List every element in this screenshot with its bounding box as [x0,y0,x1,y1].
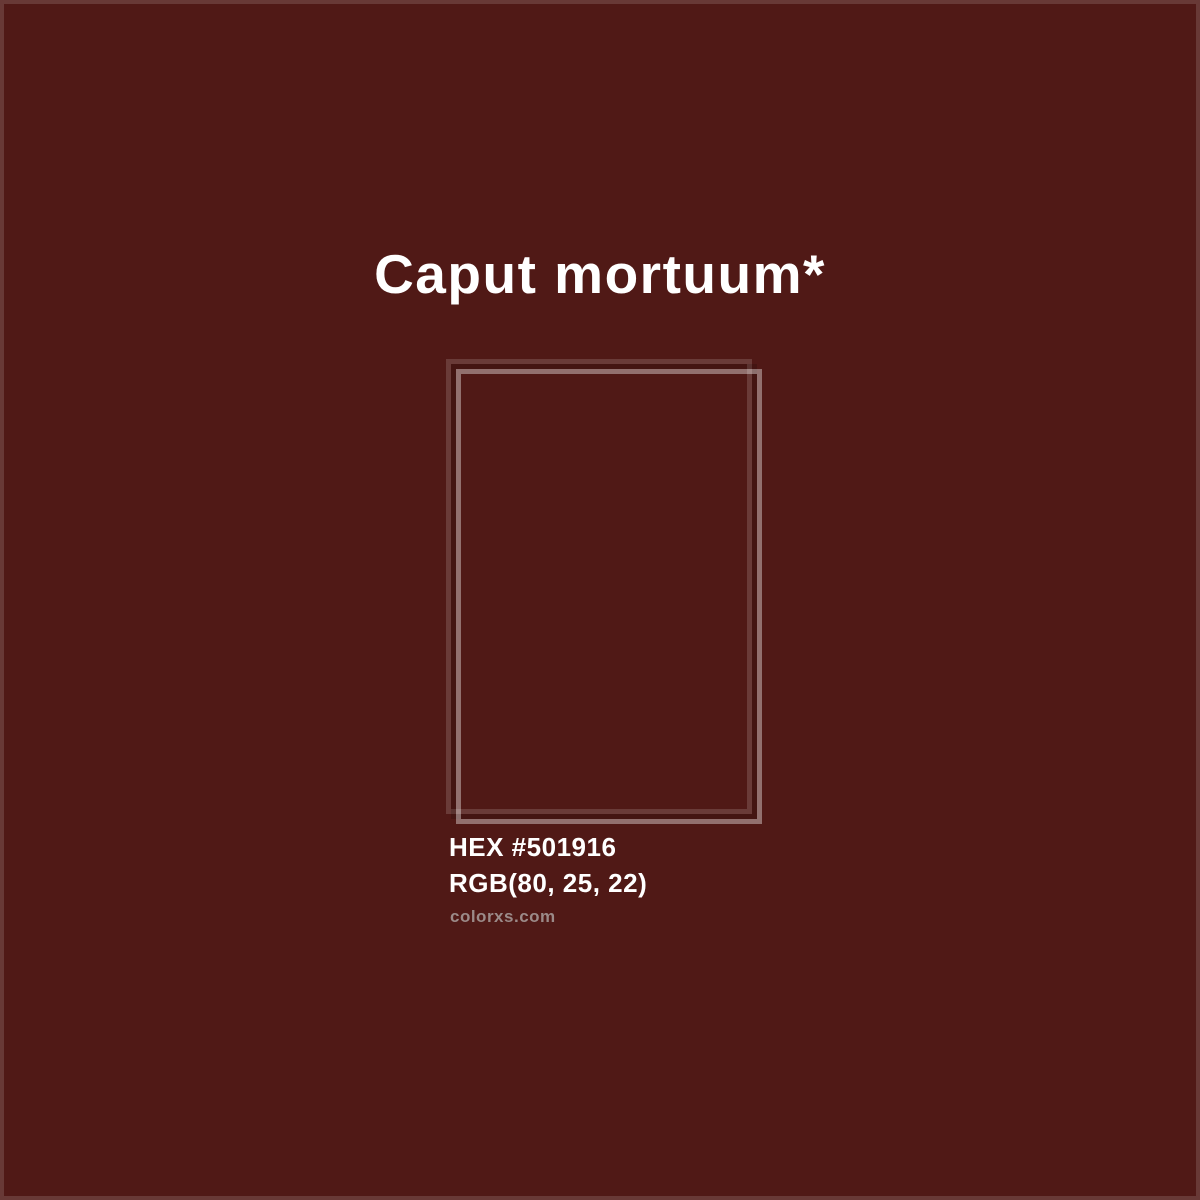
swatch-frame [445,358,767,828]
swatch-frame-outer-rect [449,362,750,812]
swatch-frame-shadow-rect [454,367,755,817]
hex-value: HEX #501916 [449,834,616,860]
color-name-title: Caput mortuum* [0,247,1200,302]
rgb-value: RGB(80, 25, 22) [449,870,647,896]
swatch-frame-inner-rect [459,372,760,822]
color-card: Caput mortuum* HEX #501916 RGB(80, 25, 2… [0,0,1200,1200]
watermark-colorxs: colorxs.com [450,908,556,925]
